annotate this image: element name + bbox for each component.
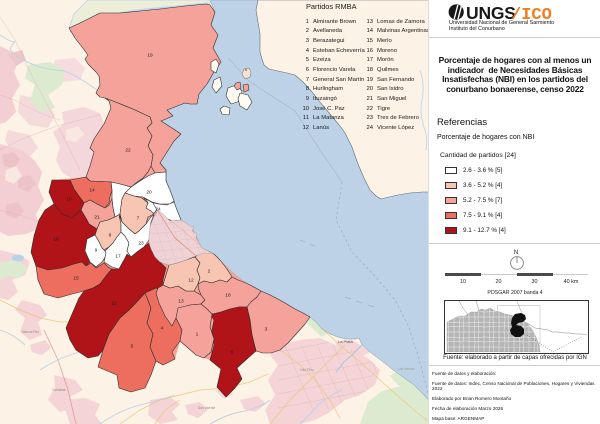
svg-text:15: 15 [73, 276, 79, 282]
svg-text:La Plata: La Plata [338, 339, 353, 344]
svg-text:21: 21 [94, 215, 100, 221]
svg-text:22: 22 [125, 148, 131, 154]
svg-text:23: 23 [138, 241, 144, 247]
svg-text:Villa Elisa: Villa Elisa [300, 368, 314, 372]
svg-text:7: 7 [137, 216, 140, 222]
svg-text:1: 1 [196, 332, 199, 338]
svg-text:13: 13 [178, 299, 184, 305]
svg-text:12: 12 [188, 278, 194, 284]
svg-text:9: 9 [95, 248, 98, 254]
svg-text:19: 19 [147, 53, 153, 59]
svg-text:San Vicente: San Vicente [198, 406, 215, 410]
svg-text:24: 24 [155, 207, 161, 213]
svg-text:20: 20 [146, 190, 152, 196]
svg-text:17: 17 [115, 254, 121, 260]
svg-text:10: 10 [66, 197, 72, 203]
svg-text:2: 2 [208, 269, 211, 275]
svg-text:14: 14 [89, 188, 95, 194]
svg-text:N: N [514, 250, 518, 256]
svg-text:Los Hornos: Los Hornos [398, 367, 415, 371]
svg-text:18: 18 [225, 293, 231, 299]
svg-text:5: 5 [131, 344, 134, 350]
svg-text:11: 11 [112, 301, 117, 307]
svg-text:4: 4 [161, 326, 164, 332]
svg-text:8: 8 [109, 233, 112, 239]
svg-text:16: 16 [53, 237, 59, 243]
svg-text:6: 6 [231, 350, 234, 356]
svg-text:Marcos Paz: Marcos Paz [22, 330, 39, 334]
svg-text:3: 3 [265, 327, 268, 333]
svg-text:Cañuelas: Cañuelas [52, 388, 66, 392]
